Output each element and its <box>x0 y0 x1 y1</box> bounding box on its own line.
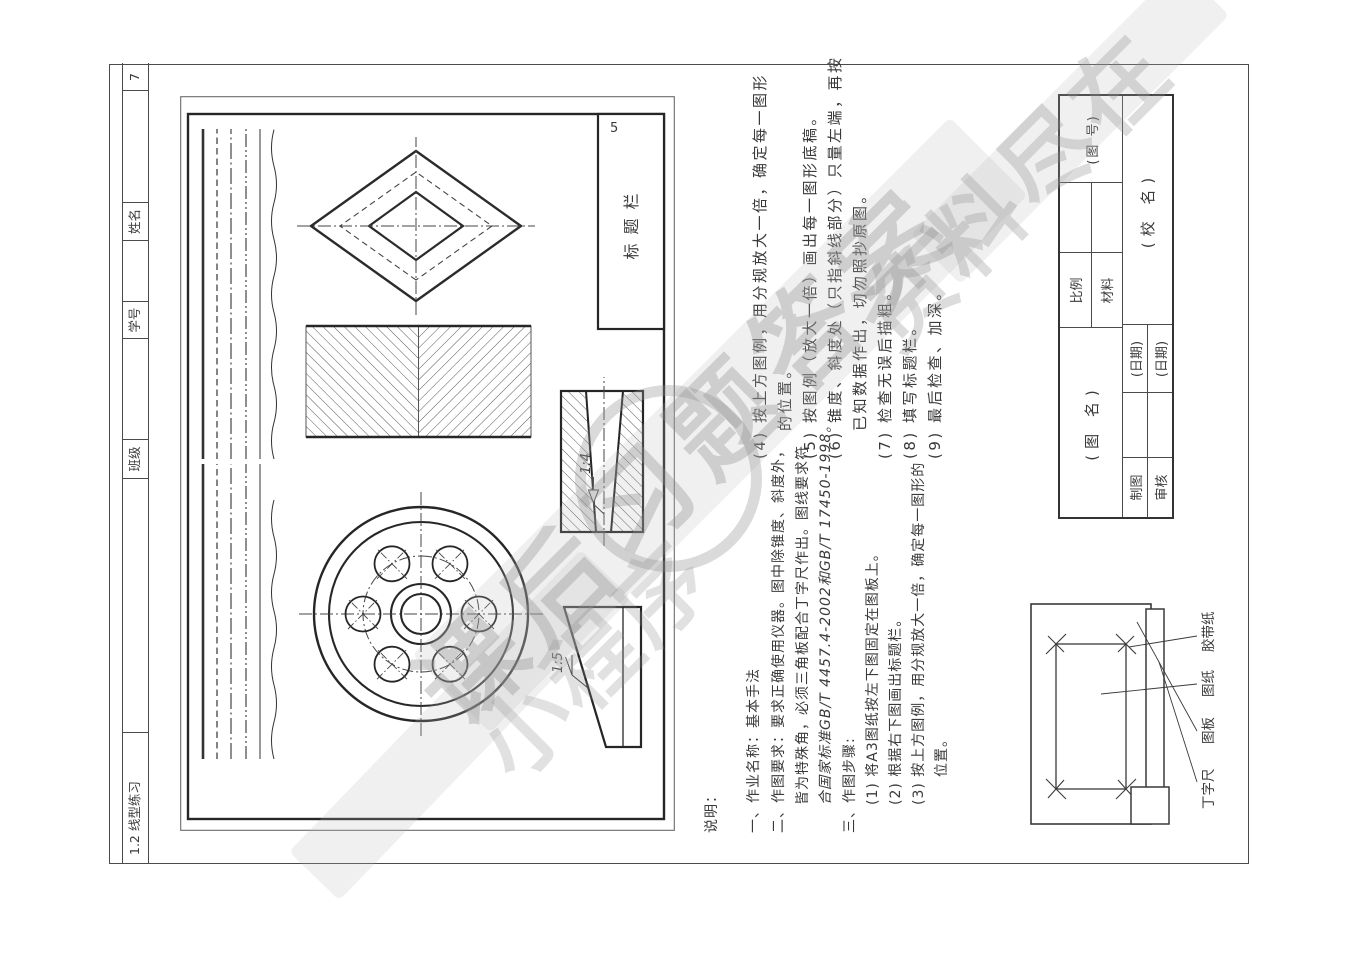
cell-school-name: (校 名) <box>1123 96 1172 324</box>
scanned-worksheet-page: 1.2 线型练习 班级 学号 姓名 7 <box>0 0 1366 968</box>
worksheet-sheet: 1.2 线型练习 班级 学号 姓名 7 <box>109 64 1249 864</box>
slope-figure: 1:5 <box>551 607 641 747</box>
note-line: 皆为特殊角，必须三角板配合丁字尺作出。图线要求符 <box>792 445 812 805</box>
paper-label: 图纸 <box>1201 670 1217 698</box>
note-line: (3) 按上方图例，用分规放大一倍，确定每一图形的 <box>908 462 928 805</box>
note-line: (6) 锥度、斜度处（只指斜线部分）只量左端，再按 <box>824 55 845 459</box>
cell-scale-label: 比例 <box>1060 253 1091 328</box>
line-samples-right <box>203 129 277 459</box>
note-line: 已知数据作出，切勿照抄原图。 <box>849 186 870 431</box>
cell-drawing-no: (图 号) <box>1060 96 1122 183</box>
note-line: 位置。 <box>931 732 951 777</box>
slope-label: 1:5 <box>551 652 566 673</box>
note-line: 说明： <box>701 788 721 833</box>
cell-checker-label: 审核 <box>1148 458 1172 517</box>
header-strip: 1.2 线型练习 班级 学号 姓名 7 <box>122 63 149 863</box>
example-figures: 1:4 1:5 标题栏 5 <box>180 96 675 831</box>
tsquare-label: 丁字尺 <box>1201 769 1217 810</box>
flange-figure <box>299 492 543 736</box>
taper-label: 1:4 <box>579 453 594 474</box>
titleblock-placement: 标题栏 5 <box>598 114 664 329</box>
name-label: 姓名 <box>123 202 148 241</box>
cell-drafter-label: 制图 <box>1123 458 1147 517</box>
note-line: (1) 将A3图纸按左下图固定在图板上。 <box>862 546 882 805</box>
note-line: (4) 按上方图例，用分规放大一倍，确定每一图形 <box>749 73 770 459</box>
tsquare-head <box>1131 787 1169 824</box>
page-number: 7 <box>123 64 148 91</box>
cell-material-label: 材料 <box>1091 253 1122 328</box>
note-line: 三、作图步骤: <box>839 737 859 833</box>
tape-marks <box>1046 634 1136 799</box>
rhombus-figure <box>297 137 535 315</box>
strip-divider <box>123 732 148 733</box>
class-label: 班级 <box>123 439 148 479</box>
note-line: 合国家标准GB/T 4457.4-2002和GB/T 17450-1998。 <box>815 418 835 805</box>
note-line: (5) 按图例（放大一倍）画出每一图形底稿。 <box>799 108 820 459</box>
cell-drawing-name: (图 名) <box>1060 328 1122 517</box>
taper-figure: 1:4 <box>561 377 643 546</box>
titleblock-placement-label: 标题栏 <box>622 184 641 259</box>
cell-date-2: (日期) <box>1148 325 1172 393</box>
tape-label: 胶带纸 <box>1200 611 1217 652</box>
note-line: (8) 填写标题栏。 <box>899 318 920 459</box>
note-line: (2) 根据右下图画出标题栏。 <box>885 612 905 805</box>
titleblock-dim: 5 <box>610 121 618 136</box>
note-line: 的位置。 <box>774 361 795 431</box>
title-block-table: (图 名) 比例 材料 (图 号) 制图 审核 (日期) (日期) (校 名) <box>1058 94 1174 519</box>
cell-date-1: (日期) <box>1123 325 1147 393</box>
paper-outline <box>1056 644 1126 789</box>
line-samples-left <box>203 464 277 759</box>
note-line: (7) 检查无误后描粗。 <box>874 283 895 459</box>
note-line: (9) 最后检查、加深。 <box>924 283 945 459</box>
note-line: 二、作图要求：要求正确使用仪器。图中除锥度、斜度外， <box>768 443 788 833</box>
drawing-board-figure: 丁字尺 图板 图纸 胶带纸 <box>1021 584 1221 834</box>
exercise-title: 1.2 线型练习 <box>123 735 148 855</box>
hatch-block-figure <box>306 326 531 437</box>
student-id-label: 学号 <box>123 301 148 339</box>
board-label: 图板 <box>1201 717 1217 745</box>
note-line: 一、作业名称：基本手法 <box>743 668 763 833</box>
